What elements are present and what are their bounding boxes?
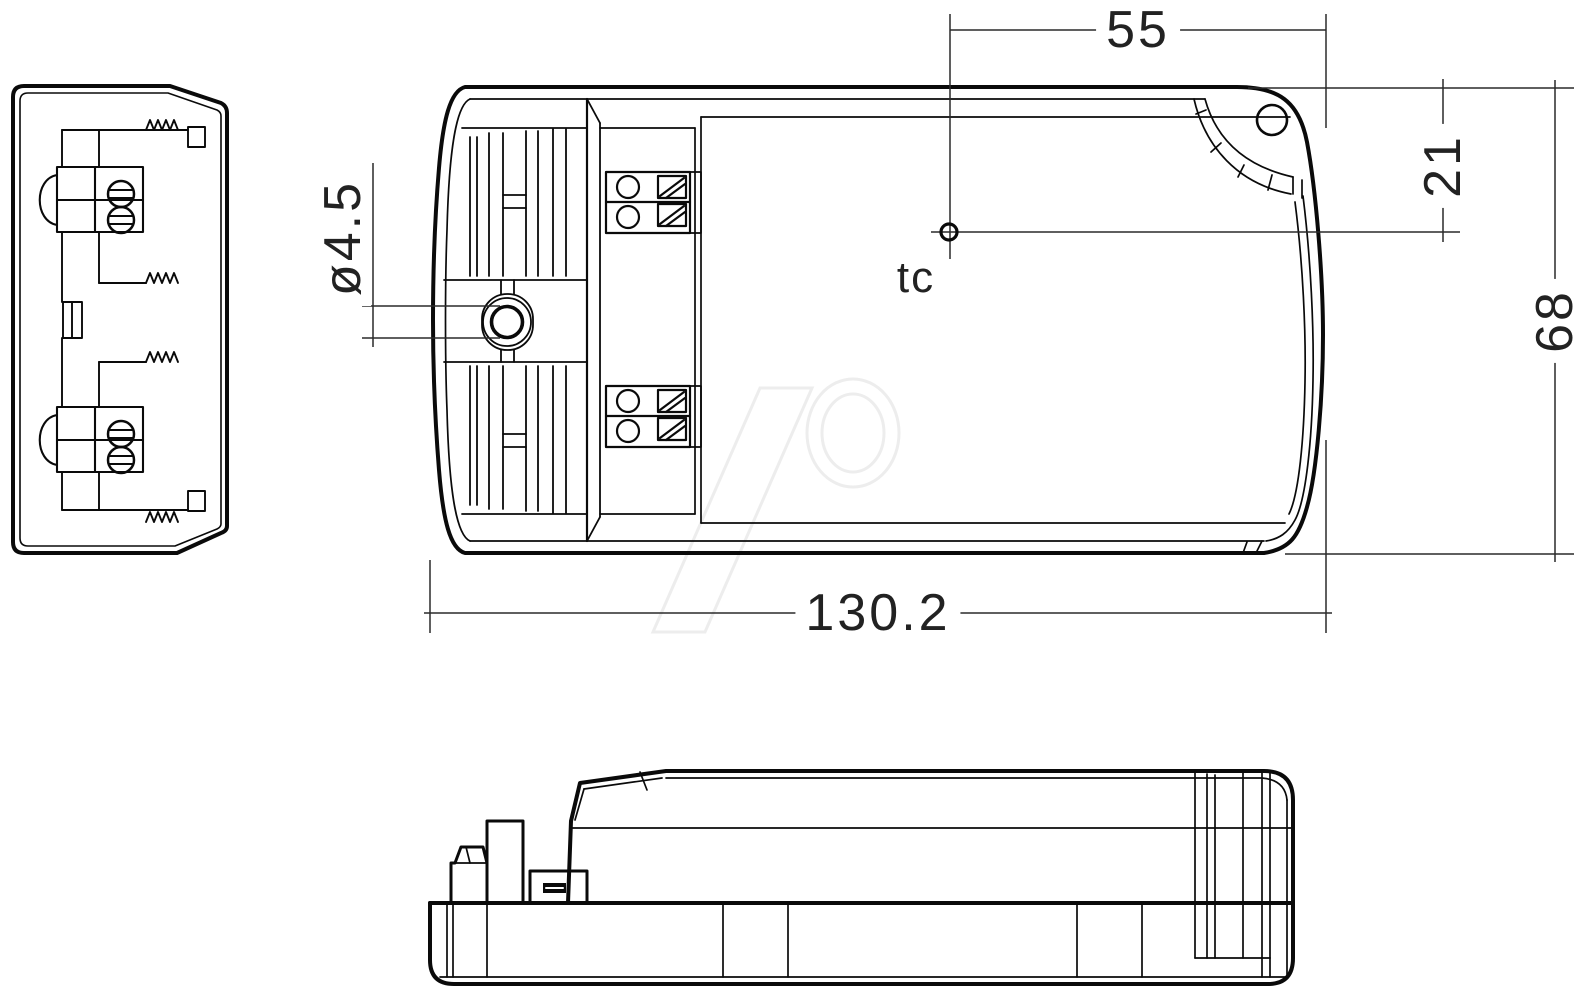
dim-label-hole-offset: 21	[1415, 124, 1471, 208]
side-connector-box	[530, 871, 587, 903]
dim-label-height: 68	[1527, 279, 1579, 363]
end-view-terminal-top	[40, 167, 143, 233]
dim-label-mount-hole-diameter: ø4.5	[315, 170, 371, 306]
snap-teeth	[146, 512, 178, 522]
terminal-block-top	[606, 172, 701, 233]
snap-teeth	[146, 273, 178, 283]
terminal-screw	[108, 447, 134, 473]
wire-clamp	[617, 420, 639, 442]
mounting-hole	[492, 307, 523, 338]
wire-clamp	[617, 206, 639, 228]
thermal-point-label: tc	[887, 254, 945, 302]
side-terminal-post	[487, 821, 523, 903]
snap-teeth	[146, 352, 178, 362]
mount-boss	[482, 280, 533, 362]
dimension-drawing-canvas	[0, 0, 1579, 999]
side-view-outer-outline	[430, 771, 1293, 984]
technical-drawing-page: { "drawing": { "labels": { "dim_top_widt…	[0, 0, 1579, 999]
corner-mount-ear	[1194, 99, 1302, 198]
snap-teeth	[146, 120, 178, 130]
terminal-screw	[108, 421, 134, 447]
dim-label-length: 130.2	[795, 585, 960, 641]
terminal-screw	[108, 207, 134, 233]
terminal-strip	[600, 117, 1290, 523]
terminal-screw	[108, 181, 134, 207]
wire-clamp	[617, 390, 639, 412]
end-view	[13, 86, 227, 553]
corner-screw-hole	[1257, 105, 1287, 135]
top-view	[433, 87, 1323, 553]
side-view	[430, 771, 1293, 984]
end-view-inner-outline	[20, 93, 221, 546]
end-view-outer-outline	[13, 86, 227, 553]
terminal-block-bottom	[606, 386, 701, 447]
dim-label-top-width: 55	[1096, 2, 1180, 58]
wire-clamp	[617, 176, 639, 198]
side-terminal-lever	[451, 847, 487, 903]
end-view-terminal-bottom	[40, 407, 143, 473]
